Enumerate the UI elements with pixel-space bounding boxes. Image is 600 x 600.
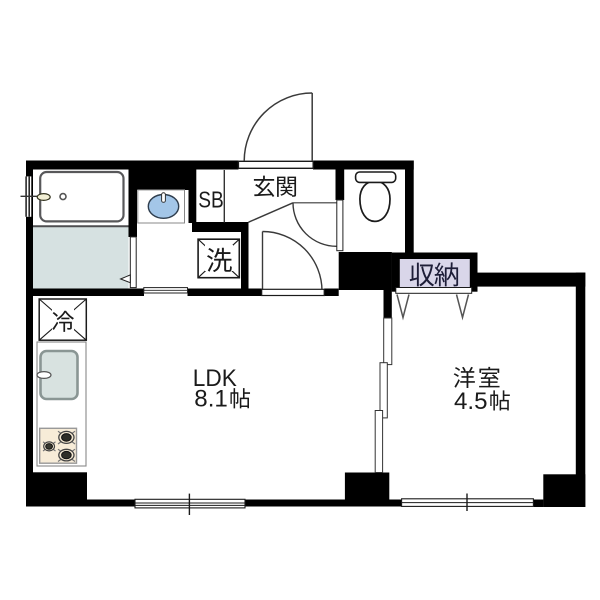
svg-text:SB: SB [198, 186, 224, 212]
svg-text:4.5: 4.5 [454, 389, 488, 415]
svg-text:8.1: 8.1 [194, 387, 228, 413]
